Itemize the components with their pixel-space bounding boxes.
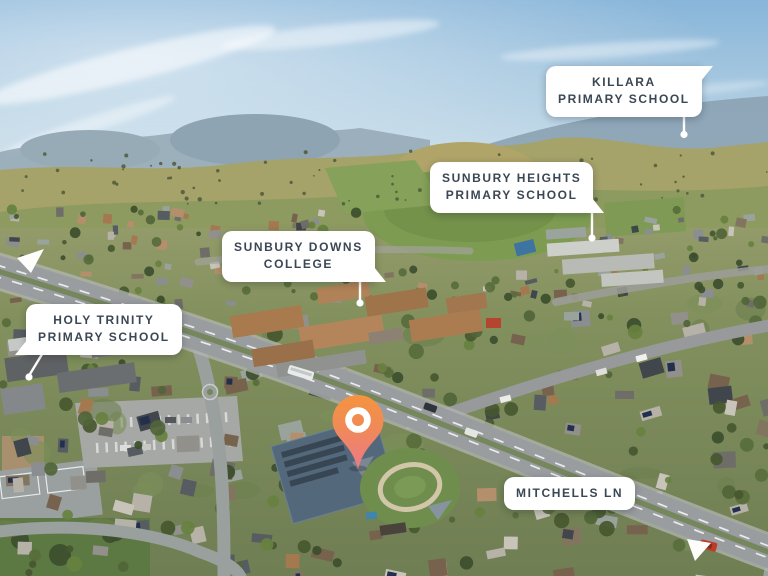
callout-sunbury-heights-primary-school: SUNBURY HEIGHTS PRIMARY SCHOOL bbox=[430, 162, 593, 213]
callout-line: PRIMARY SCHOOL bbox=[38, 329, 170, 346]
callout-line: KILLARA bbox=[558, 74, 690, 91]
road-direction-arrow-left-icon bbox=[14, 246, 50, 276]
callout-sunbury-downs-college: SUNBURY DOWNS COLLEGE bbox=[222, 231, 375, 282]
road-direction-arrow-right-icon bbox=[684, 536, 714, 564]
callout-line: PRIMARY SCHOOL bbox=[442, 187, 581, 204]
callout-holy-trinity-primary-school: HOLY TRINITY PRIMARY SCHOOL bbox=[26, 304, 182, 355]
callout-line: MITCHELLS LN bbox=[516, 485, 623, 502]
callout-line: COLLEGE bbox=[234, 256, 363, 273]
location-pin-icon bbox=[329, 393, 387, 473]
callout-line: HOLY TRINITY bbox=[38, 312, 170, 329]
callout-line: SUNBURY DOWNS bbox=[234, 239, 363, 256]
callout-killara-primary-school: KILLARA PRIMARY SCHOOL bbox=[546, 66, 702, 117]
callout-mitchells-lane-street-label: MITCHELLS LN bbox=[504, 477, 635, 510]
callout-line: PRIMARY SCHOOL bbox=[558, 91, 690, 108]
callout-line: SUNBURY HEIGHTS bbox=[442, 170, 581, 187]
